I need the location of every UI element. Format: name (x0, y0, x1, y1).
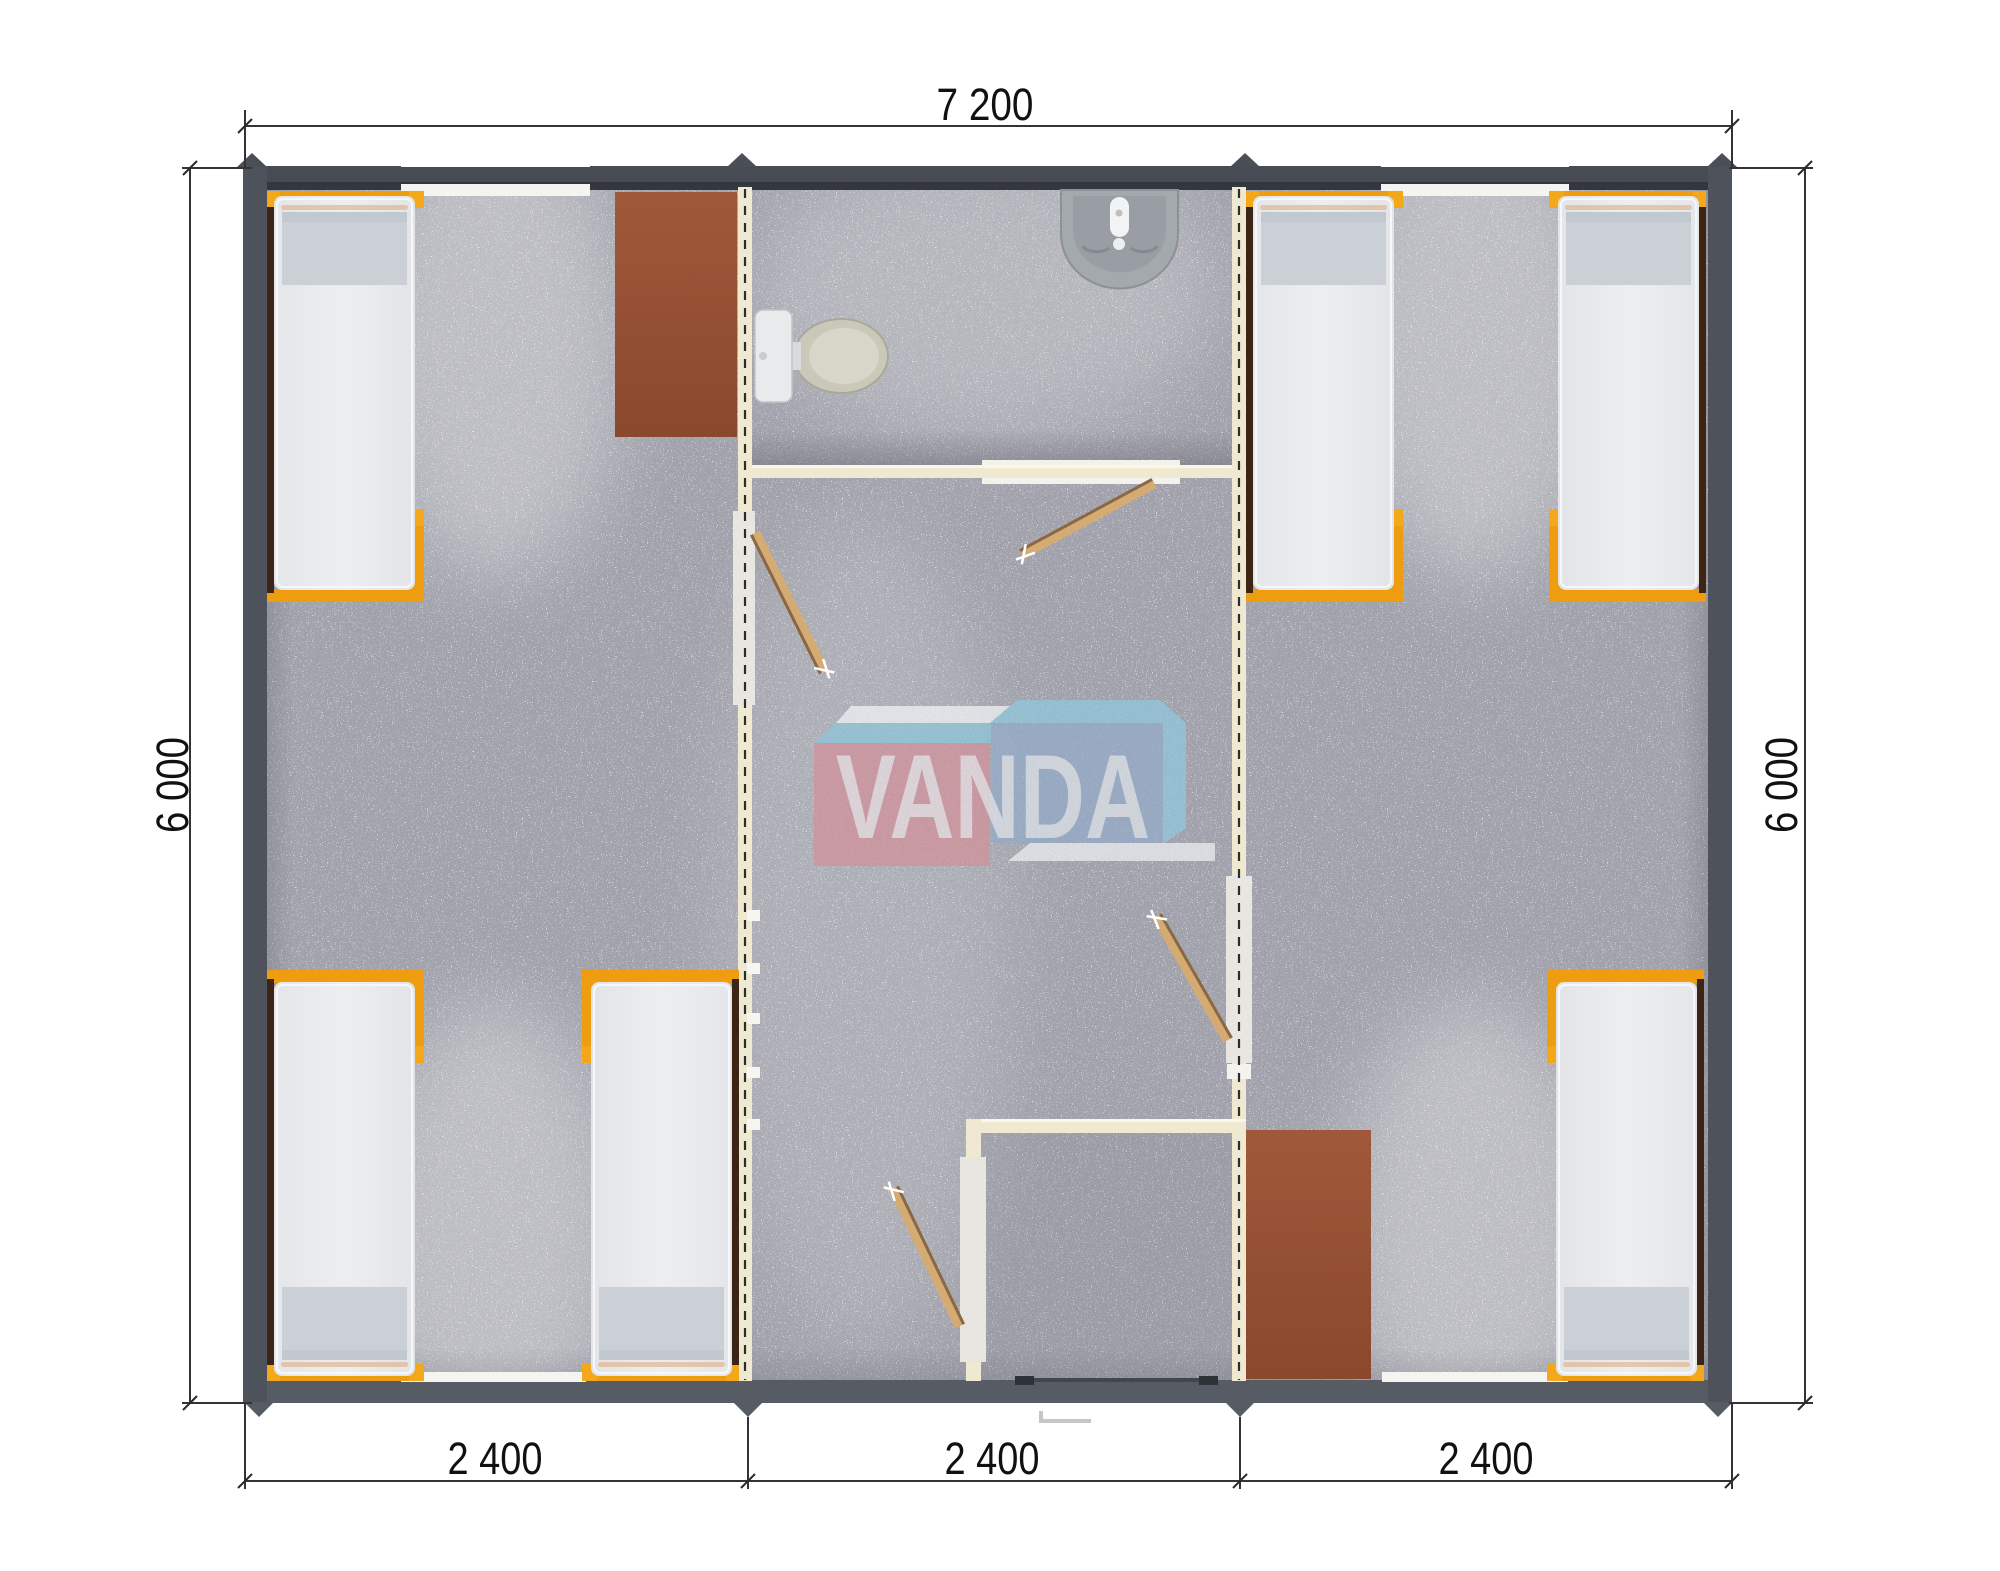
svg-text:6 000: 6 000 (1756, 737, 1807, 833)
svg-text:2 400: 2 400 (1439, 1433, 1534, 1484)
svg-text:VANDA: VANDA (836, 730, 1151, 864)
svg-text:6 000: 6 000 (147, 737, 198, 833)
svg-text:2 400: 2 400 (448, 1433, 543, 1484)
svg-text:2 400: 2 400 (945, 1433, 1040, 1484)
svg-text:7 200: 7 200 (937, 79, 1034, 130)
